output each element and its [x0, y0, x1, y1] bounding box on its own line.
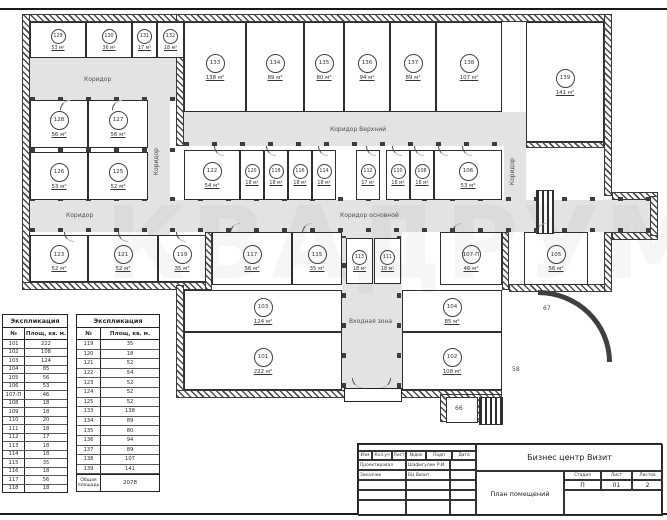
org-cell — [564, 490, 663, 516]
room-number: 103 — [254, 298, 273, 317]
room-number: 110 — [391, 164, 406, 179]
col-header-area: Площ, кв. м. — [101, 328, 159, 339]
cell-area: 56 — [25, 476, 67, 484]
cell-num: 102 — [3, 349, 25, 357]
room-area: 18 м² — [391, 181, 404, 186]
cell-area: 46 — [25, 391, 67, 399]
corridor-left-vertical-label: Коридор — [153, 148, 160, 175]
table-row: 12452 — [77, 388, 159, 398]
corridor-main-label: Коридор основной — [340, 212, 399, 219]
cell-area: 52 — [101, 378, 159, 387]
tb-empty-cell — [358, 500, 406, 516]
tb-empty-cell — [358, 480, 406, 490]
room-106: 10653 м² — [434, 150, 502, 200]
cell-area: 52 — [101, 388, 159, 397]
room-111: 11118 м² — [374, 238, 401, 284]
room-101: 101222 м² — [184, 332, 342, 390]
room-116: 11618 м² — [288, 150, 312, 200]
cell-area: 18 — [25, 485, 67, 493]
entrance-porch — [344, 388, 402, 402]
room-number: 127 — [109, 111, 128, 130]
room-area: 18 м² — [415, 181, 428, 186]
room-area: 18 м² — [353, 267, 366, 272]
tb-signature-cell — [450, 460, 476, 470]
room-area: 18 м² — [269, 181, 282, 186]
cell-num: 133 — [77, 407, 101, 416]
corridor-upper-label: Коридор Верхний — [330, 126, 386, 133]
room-118: 11818 м² — [264, 150, 288, 200]
tb-role: Проектировал — [358, 460, 406, 470]
room-132: 13218 м² — [157, 22, 184, 58]
room-number: 136 — [358, 54, 377, 73]
cell-num: 111 — [3, 425, 25, 433]
pilaster-strip — [184, 142, 504, 146]
tb-role: Заказчик — [358, 470, 406, 480]
table-row: 12352 — [77, 378, 159, 388]
room-126: 12653 м² — [30, 152, 88, 200]
tb-empty-cell — [406, 480, 450, 490]
room-area: 141 м² — [556, 90, 575, 96]
cell-area: 18 — [25, 468, 67, 476]
cell-area: 138 — [101, 407, 159, 416]
room-129: 12953 м² — [30, 22, 86, 58]
cell-num: 137 — [77, 446, 101, 455]
room-number: 111 — [380, 250, 395, 265]
table-row: 10653 — [3, 383, 67, 392]
room-number: 125 — [109, 163, 128, 182]
cell-num: 123 — [77, 378, 101, 387]
cell-area: 141 — [101, 465, 159, 474]
tb-empty-cell — [406, 490, 450, 500]
floor-plan-page: Коридор Коридор Коридор Коридор Верхний … — [0, 0, 667, 520]
room-number: 115 — [308, 245, 327, 264]
col-header-num: № — [3, 328, 25, 339]
cell-num: 118 — [3, 485, 25, 493]
cell-num: 135 — [77, 426, 101, 435]
cell-num: 120 — [77, 350, 101, 359]
room-114: 11418 м² — [312, 150, 336, 200]
corridor-right-vertical-label: Коридор — [509, 158, 516, 185]
cell-num: 105 — [3, 374, 25, 382]
cell-num: 101 — [3, 340, 25, 348]
room-area: 46 м² — [463, 266, 478, 272]
cell-num: 114 — [3, 451, 25, 459]
room-123: 12352 м² — [30, 235, 88, 282]
cell-area: 85 — [25, 366, 67, 374]
room-number: 139 — [556, 69, 575, 88]
table-row: 11118 — [3, 425, 67, 434]
room-number: 112 — [361, 164, 376, 179]
room-number: 123 — [50, 245, 69, 264]
cell-num: 107-П — [3, 391, 25, 399]
total-value: 2078 — [101, 475, 159, 491]
room-number: 128 — [50, 111, 69, 130]
room-area: 18 м² — [293, 181, 306, 186]
title-block: Бизнес центр Визит План помещений ИзмКол… — [357, 443, 662, 515]
cell-area: 94 — [101, 436, 159, 445]
project-name: Бизнес центр Визит — [476, 444, 663, 471]
room-number: 137 — [404, 54, 423, 73]
cell-area: 17 — [25, 434, 67, 442]
tb-col-2: Кол.уч — [372, 451, 392, 460]
wall — [650, 196, 658, 236]
tb-col-5: Подп — [426, 451, 452, 460]
tb-col-4: №док — [406, 451, 426, 460]
table-row: 12254 — [77, 369, 159, 379]
cell-num: 103 — [3, 357, 25, 365]
room-area: 52 м² — [51, 266, 66, 272]
col-header-num: № — [77, 328, 101, 339]
cell-num: 122 — [77, 369, 101, 378]
room-number: 131 — [137, 29, 152, 44]
page-top-line — [0, 8, 667, 10]
room-number: 106 — [459, 162, 478, 181]
table-row: 11418 — [3, 451, 67, 460]
room-area: 138 м² — [206, 75, 225, 81]
tb-col-3: Лист — [392, 451, 406, 460]
wall — [509, 284, 612, 292]
cell-num: 117 — [3, 476, 25, 484]
room-area: 53 м² — [51, 184, 66, 190]
wall — [22, 14, 184, 22]
drawing-title: План помещений — [476, 471, 564, 516]
cell-num: 109 — [3, 408, 25, 416]
room-number: 129 — [51, 29, 66, 44]
room-107-П: 107-П46 м² — [440, 232, 502, 285]
room-105: 10556 м² — [524, 232, 588, 285]
tb-name: Шафигулин Р.И. — [406, 460, 450, 470]
cell-num: 119 — [77, 340, 101, 349]
table-row: 11818 — [3, 485, 67, 493]
tb-empty-cell — [450, 480, 476, 490]
room-125: 12552 м² — [88, 152, 148, 200]
table-row: 11217 — [3, 434, 67, 443]
explication-table-1: Экспликация№ Площ, кв. м.101222102108103… — [2, 314, 68, 493]
cell-area: 18 — [25, 400, 67, 408]
table-row: 13580 — [77, 426, 159, 436]
cell-num: 139 — [77, 465, 101, 474]
tb-empty-cell — [406, 500, 450, 516]
room-117: 11756 м² — [212, 232, 292, 285]
tb-empty-cell — [450, 500, 476, 516]
room-138: 138107 м² — [436, 22, 502, 112]
wall — [22, 14, 30, 290]
room-135: 13580 м² — [304, 22, 344, 112]
cell-area: 35 — [25, 459, 67, 467]
cell-area: 56 — [25, 374, 67, 382]
room-120: 12018 м² — [240, 150, 264, 200]
cell-num: 125 — [77, 398, 101, 407]
room-108: 10818 м² — [410, 150, 434, 200]
room-area: 52 м² — [115, 266, 130, 272]
wall — [205, 232, 212, 290]
room-area: 85 м² — [444, 319, 459, 325]
room-area: 89 м² — [267, 75, 282, 81]
corridor-mid-left-label: Коридор — [66, 212, 93, 219]
tb-col-6: Дата — [452, 451, 476, 460]
cell-num: 113 — [3, 442, 25, 450]
table-title: Экспликация — [77, 315, 159, 328]
room-area: 18 м² — [317, 181, 330, 186]
room-number: 113 — [352, 250, 367, 265]
cell-area: 35 — [101, 340, 159, 349]
table-row: 107-П46 — [3, 391, 67, 400]
room-area: 107 м² — [460, 75, 479, 81]
room-number: 133 — [206, 54, 225, 73]
table-row: 11020 — [3, 417, 67, 426]
cell-area: 52 — [101, 359, 159, 368]
stage-header: Листов — [632, 471, 663, 480]
cell-num: 112 — [3, 434, 25, 442]
stair-label-66: 66 — [455, 405, 463, 412]
table-row: 12152 — [77, 359, 159, 369]
room-number: 119 — [173, 245, 192, 264]
room-104: 10485 м² — [402, 290, 502, 332]
room-number: 104 — [443, 298, 462, 317]
table-row: 101222 — [3, 340, 67, 349]
col-header-area: Площ, кв. м. — [25, 328, 67, 339]
room-133: 133138 м² — [184, 22, 246, 112]
cell-num: 104 — [3, 366, 25, 374]
stairs — [479, 397, 503, 425]
wall — [526, 142, 604, 148]
cell-area: 20 — [25, 417, 67, 425]
room-area: 108 м² — [443, 369, 462, 375]
room-number: 132 — [163, 29, 178, 44]
room-136: 13694 м² — [344, 22, 390, 112]
room-area: 18 м² — [381, 267, 394, 272]
room-area: 124 м² — [254, 319, 273, 325]
room-121: 12152 м² — [88, 235, 158, 282]
room-area: 80 м² — [316, 75, 331, 81]
cell-area: 18 — [25, 408, 67, 416]
table-row: 11935 — [77, 340, 159, 350]
cell-num: 110 — [3, 417, 25, 425]
room-area: 56 м² — [110, 132, 125, 138]
room-137: 13789 м² — [390, 22, 436, 112]
cell-area: 80 — [101, 426, 159, 435]
table-row: 11535 — [3, 459, 67, 468]
room-area: 54 м² — [204, 183, 219, 189]
room-area: 222 м² — [254, 369, 273, 375]
room-area: 53 м² — [51, 46, 64, 51]
room-number: 134 — [266, 54, 285, 73]
table-row: 11318 — [3, 442, 67, 451]
cell-num: 108 — [3, 400, 25, 408]
room-112: 11217 м² — [356, 150, 380, 200]
stage-header: Лист — [601, 471, 632, 480]
table-row: 12018 — [77, 350, 159, 360]
room-122: 12254 м² — [184, 150, 240, 200]
wall — [604, 232, 612, 292]
room-area: 35 м² — [174, 266, 189, 272]
total-label: Общая площадь — [77, 475, 101, 491]
stage-value: 01 — [601, 480, 632, 490]
curved-wall — [538, 290, 612, 362]
cell-area: 54 — [101, 369, 159, 378]
tb-empty-cell — [450, 490, 476, 500]
table-row: 10918 — [3, 408, 67, 417]
table-row: 102108 — [3, 349, 67, 358]
room-area: 56 м² — [244, 266, 259, 272]
room-number: 116 — [293, 164, 308, 179]
table-row: 10556 — [3, 374, 67, 383]
table-row: 133138 — [77, 407, 159, 417]
cell-num: 138 — [77, 455, 101, 464]
room-area: 52 м² — [110, 184, 125, 190]
tb-empty-row — [358, 444, 476, 451]
table-title: Экспликация — [3, 315, 67, 328]
table-row: 13489 — [77, 417, 159, 427]
tb-signature-cell — [450, 470, 476, 480]
cell-num: 116 — [3, 468, 25, 476]
cell-area: 124 — [25, 357, 67, 365]
room-130: 13036 м² — [86, 22, 132, 58]
cell-num: 106 — [3, 383, 25, 391]
room-area: 36 м² — [102, 46, 115, 51]
room-128: 12856 м² — [30, 100, 88, 148]
wall — [502, 232, 509, 290]
room-number: 108 — [415, 164, 430, 179]
cell-area: 18 — [25, 442, 67, 450]
room-number: 138 — [460, 54, 479, 73]
cell-area: 53 — [25, 383, 67, 391]
table-row: 10818 — [3, 400, 67, 409]
room-119: 11935 м² — [158, 235, 206, 282]
room-area: 35 м² — [309, 266, 324, 272]
room-area: 89 м² — [405, 75, 420, 81]
stage-header: Стадия — [564, 471, 601, 480]
stage-value: П — [564, 480, 601, 490]
room-115: 11535 м² — [292, 232, 342, 285]
wall — [176, 285, 184, 398]
table-row: 13789 — [77, 446, 159, 456]
cell-area: 108 — [25, 349, 67, 357]
room-113: 11318 м² — [346, 238, 373, 284]
cell-area: 18 — [25, 425, 67, 433]
corridor-top-left-label: Коридор — [84, 76, 111, 83]
stair-label-67: 67 — [543, 305, 551, 312]
cell-num: 115 — [3, 459, 25, 467]
cell-area: 52 — [101, 398, 159, 407]
room-area: 53 м² — [460, 183, 475, 189]
tb-col-1: Изм — [358, 451, 372, 460]
cell-num: 124 — [77, 388, 101, 397]
cell-num: 136 — [77, 436, 101, 445]
room-number: 102 — [443, 348, 462, 367]
cell-area: 18 — [101, 350, 159, 359]
table-row: 11756 — [3, 476, 67, 485]
room-number: 105 — [547, 245, 566, 264]
cell-area: 89 — [101, 417, 159, 426]
room-area: 94 м² — [359, 75, 374, 81]
room-number: 120 — [245, 164, 260, 179]
tb-empty-cell — [358, 490, 406, 500]
cell-num: 121 — [77, 359, 101, 368]
room-131: 13117 м² — [132, 22, 157, 58]
cell-area: 107 — [101, 455, 159, 464]
room-103: 103124 м² — [184, 290, 342, 332]
room-area: 18 м² — [164, 46, 177, 51]
table-row: 138107 — [77, 455, 159, 465]
cell-area: 89 — [101, 446, 159, 455]
cell-area: 222 — [25, 340, 67, 348]
entrance-zone-label: Входная зона — [349, 318, 392, 325]
room-134: 13489 м² — [246, 22, 304, 112]
room-area: 17 м² — [138, 46, 151, 51]
table-row: 139141 — [77, 465, 159, 475]
table-row: 13694 — [77, 436, 159, 446]
table-row: 103124 — [3, 357, 67, 366]
room-110: 11018 м² — [386, 150, 410, 200]
explication-table-2: Экспликация№ Площ, кв. м.119351201812152… — [76, 314, 160, 492]
cell-area: 18 — [25, 451, 67, 459]
room-area: 56 м² — [51, 132, 66, 138]
room-number: 122 — [203, 162, 222, 181]
wall — [176, 14, 612, 22]
tb-name: БЦ Визит — [406, 470, 450, 480]
room-area: 17 м² — [361, 181, 374, 186]
room-number: 101 — [254, 348, 273, 367]
room-number: 117 — [243, 245, 262, 264]
room-area: 18 м² — [245, 181, 258, 186]
cell-num: 134 — [77, 417, 101, 426]
table-row: 10485 — [3, 366, 67, 375]
room-number: 118 — [269, 164, 284, 179]
room-number: 114 — [317, 164, 332, 179]
table-row: 12552 — [77, 398, 159, 408]
room-area: 56 м² — [548, 266, 563, 272]
stage-value: 2 — [632, 480, 663, 490]
room-139: 139141 м² — [526, 22, 604, 142]
wall — [604, 14, 612, 196]
wall — [176, 390, 346, 398]
room-number: 107-П — [462, 245, 481, 264]
room-number: 126 — [50, 163, 69, 182]
room-number: 135 — [315, 54, 334, 73]
room-number: 121 — [114, 245, 133, 264]
room-102: 102108 м² — [402, 332, 502, 390]
stair-label-58: 58 — [512, 366, 520, 373]
room-number: 130 — [102, 29, 117, 44]
table-row: 11618 — [3, 468, 67, 477]
